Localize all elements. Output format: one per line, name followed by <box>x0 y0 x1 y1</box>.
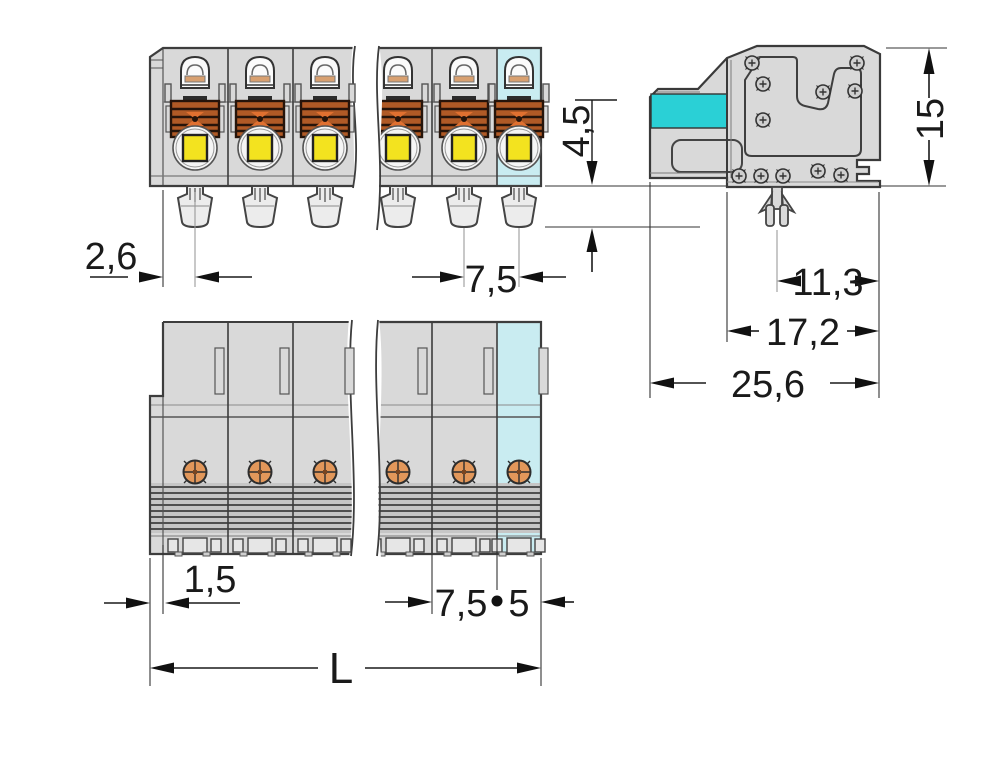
dim-label: 5 <box>508 583 529 625</box>
dim-body-depth: 17,2 <box>727 312 879 354</box>
highlight-side-cyan <box>651 94 727 128</box>
dim-foot-to-edge: 11,3 <box>777 262 879 304</box>
front-view <box>150 44 549 230</box>
dim-label: 2,6 <box>85 236 138 278</box>
dim-label: 25,6 <box>731 364 805 406</box>
dim-label: 7,5 <box>465 259 518 301</box>
dim-label: 7,5 <box>435 583 488 625</box>
bottom-view <box>150 318 548 558</box>
dim-edge-offset: 2,6 <box>85 190 252 287</box>
dim-label: 17,2 <box>766 312 840 354</box>
push-pin-foot <box>760 187 794 226</box>
dim-total-depth: 25,6 <box>650 364 879 406</box>
side-view <box>650 46 880 226</box>
technical-drawing-page: 2,6 7,5 4,5 15 <box>0 0 1000 773</box>
dim-length: L <box>150 644 541 693</box>
technical-drawing: 2,6 7,5 4,5 15 <box>0 0 1000 773</box>
dim-label: 4,5 <box>556 105 598 158</box>
dim-label: 1,5 <box>184 559 237 601</box>
dim-label: 15 <box>910 98 952 140</box>
dim-label: L <box>329 644 353 693</box>
multiply-dot <box>492 596 503 607</box>
dim-label: 11,3 <box>792 262 863 304</box>
dim-pitch-top: 7,5 <box>412 259 566 301</box>
dim-height: 15 <box>910 48 952 186</box>
